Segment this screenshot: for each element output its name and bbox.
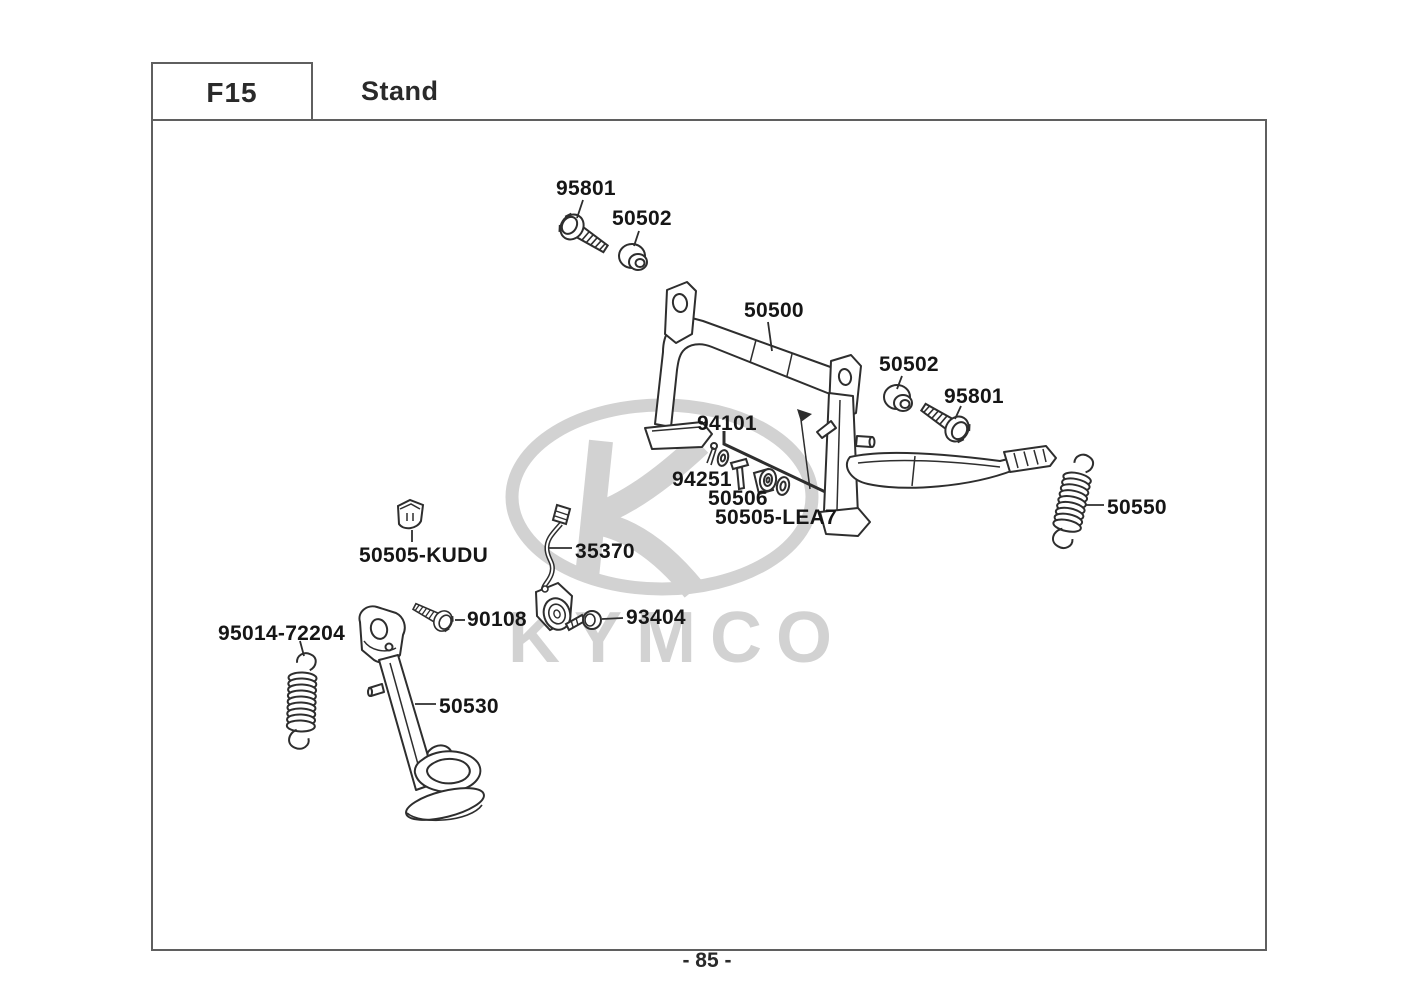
part-label-93404: 93404 [626, 607, 686, 628]
bolt-90108-drawing [410, 597, 456, 634]
part-label-95014-72204: 95014-72204 [218, 623, 345, 644]
part-label-50530: 50530 [439, 696, 499, 717]
part-label-95801-right: 95801 [944, 386, 1004, 407]
part-label-50550: 50550 [1107, 497, 1167, 518]
part-label-50500: 50500 [744, 300, 804, 321]
part-label-90108: 90108 [467, 609, 527, 630]
main-stand-spring-drawing [1049, 451, 1096, 550]
part-label-35370: 35370 [575, 541, 635, 562]
part-label-50502-top: 50502 [612, 208, 672, 229]
part-label-50502-right: 50502 [879, 354, 939, 375]
side-stand-spring-drawing [286, 653, 317, 750]
part-label-95801-top: 95801 [556, 178, 616, 199]
kymco-k-logo-icon [587, 441, 700, 590]
parts-catalog-page: F15 Stand [0, 0, 1415, 1000]
bolt-95801-top-drawing [555, 210, 612, 260]
part-label-50505-kudu: 50505-KUDU [359, 545, 488, 566]
part-label-50505-lea7: 50505-LEA7 [715, 507, 837, 528]
rubber-stopper-drawing [398, 500, 423, 528]
part-label-94101: 94101 [697, 413, 757, 434]
pointer-arrow-icon [797, 409, 812, 422]
page-number: - 85 - [607, 949, 807, 973]
grommet-50502-top-drawing [619, 244, 647, 270]
